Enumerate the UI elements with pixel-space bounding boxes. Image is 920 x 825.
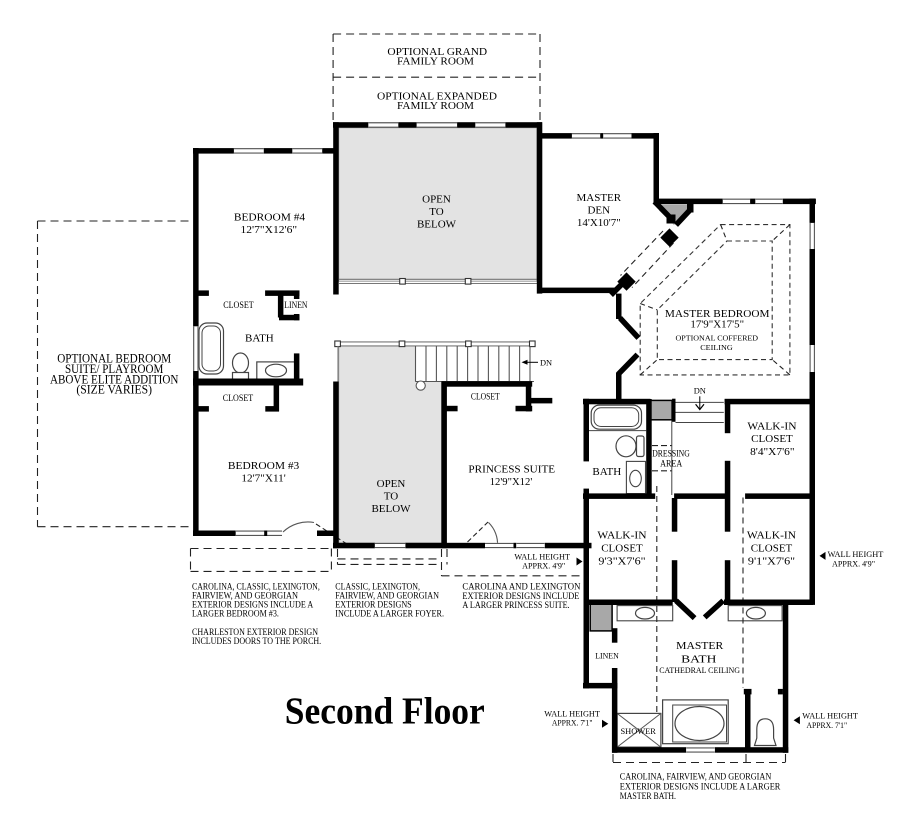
svg-text:WALL HEIGHT: WALL HEIGHT — [828, 550, 884, 559]
svg-text:BELOW: BELOW — [417, 219, 457, 231]
svg-text:FAMILY ROOM: FAMILY ROOM — [397, 100, 474, 112]
svg-text:9'1"X7'6": 9'1"X7'6" — [748, 555, 795, 567]
svg-text:WALL HEIGHT: WALL HEIGHT — [802, 712, 858, 721]
svg-text:DRESSING: DRESSING — [652, 448, 690, 458]
svg-text:AREA: AREA — [660, 459, 683, 469]
svg-text:CEILING: CEILING — [700, 343, 733, 352]
svg-text:12'9"X12': 12'9"X12' — [490, 476, 533, 488]
svg-text:FAMILY ROOM: FAMILY ROOM — [397, 56, 474, 68]
svg-text:OPEN: OPEN — [377, 478, 406, 490]
svg-text:INCLUDES DOORS TO THE PORCH.: INCLUDES DOORS TO THE PORCH. — [192, 636, 321, 646]
svg-text:BEDROOM #3: BEDROOM #3 — [228, 460, 300, 472]
svg-text:CLOSET: CLOSET — [751, 542, 793, 554]
svg-text:WALL HEIGHT: WALL HEIGHT — [544, 710, 600, 719]
svg-text:TO: TO — [429, 206, 444, 218]
svg-text:APPRX. 7'1": APPRX. 7'1" — [552, 719, 593, 728]
svg-text:CAROLINA, FAIRVIEW, AND GEORGI: CAROLINA, FAIRVIEW, AND GEORGIAN — [620, 772, 772, 782]
svg-text:BELOW: BELOW — [371, 503, 411, 515]
svg-text:APPRX. 7'1": APPRX. 7'1" — [807, 721, 848, 730]
svg-text:SHOWER: SHOWER — [621, 726, 657, 736]
svg-text:APPRX. 4'9": APPRX. 4'9" — [522, 561, 565, 570]
svg-text:BATH: BATH — [245, 332, 274, 344]
svg-text:DN: DN — [694, 386, 706, 395]
svg-text:LARGER BEDROOM #3.: LARGER BEDROOM #3. — [192, 609, 279, 619]
svg-text:DEN: DEN — [587, 205, 610, 217]
svg-text:PRINCESS SUITE: PRINCESS SUITE — [468, 463, 555, 475]
svg-text:(SIZE VARIES): (SIZE VARIES) — [76, 383, 152, 397]
svg-text:BEDROOM #4: BEDROOM #4 — [234, 212, 306, 224]
svg-text:MASTER BATH.: MASTER BATH. — [620, 791, 676, 801]
svg-text:DN: DN — [540, 359, 552, 368]
svg-text:APPRX. 4'9": APPRX. 4'9" — [832, 559, 875, 568]
svg-text:OPTIONAL COFFERED: OPTIONAL COFFERED — [676, 333, 759, 342]
svg-text:LINEN: LINEN — [284, 300, 308, 310]
svg-text:TO: TO — [384, 491, 399, 503]
svg-text:12'7"X11': 12'7"X11' — [241, 473, 285, 485]
svg-text:LINEN: LINEN — [595, 651, 619, 661]
svg-text:A LARGER PRINCESS SUITE.: A LARGER PRINCESS SUITE. — [462, 600, 569, 610]
svg-text:CLOSET: CLOSET — [751, 433, 793, 445]
svg-text:CLOSET: CLOSET — [223, 300, 254, 310]
svg-text:CLOSET: CLOSET — [601, 542, 643, 554]
svg-text:WALK-IN: WALK-IN — [747, 420, 796, 432]
svg-text:EXTERIOR DESIGNS INCLUDE A LAR: EXTERIOR DESIGNS INCLUDE A LARGER — [620, 781, 781, 791]
svg-text:CAROLINA AND LEXINGTON: CAROLINA AND LEXINGTON — [462, 581, 580, 591]
svg-text:9'3"X7'6": 9'3"X7'6" — [598, 555, 645, 567]
svg-text:12'7"X12'6": 12'7"X12'6" — [241, 224, 298, 236]
svg-text:WALK-IN: WALK-IN — [597, 529, 646, 541]
svg-text:WALL HEIGHT: WALL HEIGHT — [514, 552, 570, 561]
svg-text:14'X10'7": 14'X10'7" — [577, 217, 621, 229]
svg-text:CLOSET: CLOSET — [471, 391, 500, 401]
svg-text:MASTER: MASTER — [576, 192, 621, 204]
svg-text:8'4"X7'6": 8'4"X7'6" — [750, 446, 794, 458]
svg-text:OPEN: OPEN — [422, 194, 451, 206]
svg-text:17'9"X17'5": 17'9"X17'5" — [690, 319, 744, 331]
svg-text:CLOSET: CLOSET — [223, 393, 254, 403]
svg-text:CATHEDRAL CEILING: CATHEDRAL CEILING — [659, 666, 740, 675]
svg-text:BATH: BATH — [681, 654, 716, 666]
svg-text:WALK-IN: WALK-IN — [747, 529, 796, 541]
svg-text:BATH: BATH — [592, 466, 621, 478]
svg-text:MASTER: MASTER — [676, 640, 724, 652]
svg-text:INCLUDE A LARGER FOYER.: INCLUDE A LARGER FOYER. — [335, 609, 444, 619]
svg-text:Second Floor: Second Floor — [285, 691, 485, 733]
